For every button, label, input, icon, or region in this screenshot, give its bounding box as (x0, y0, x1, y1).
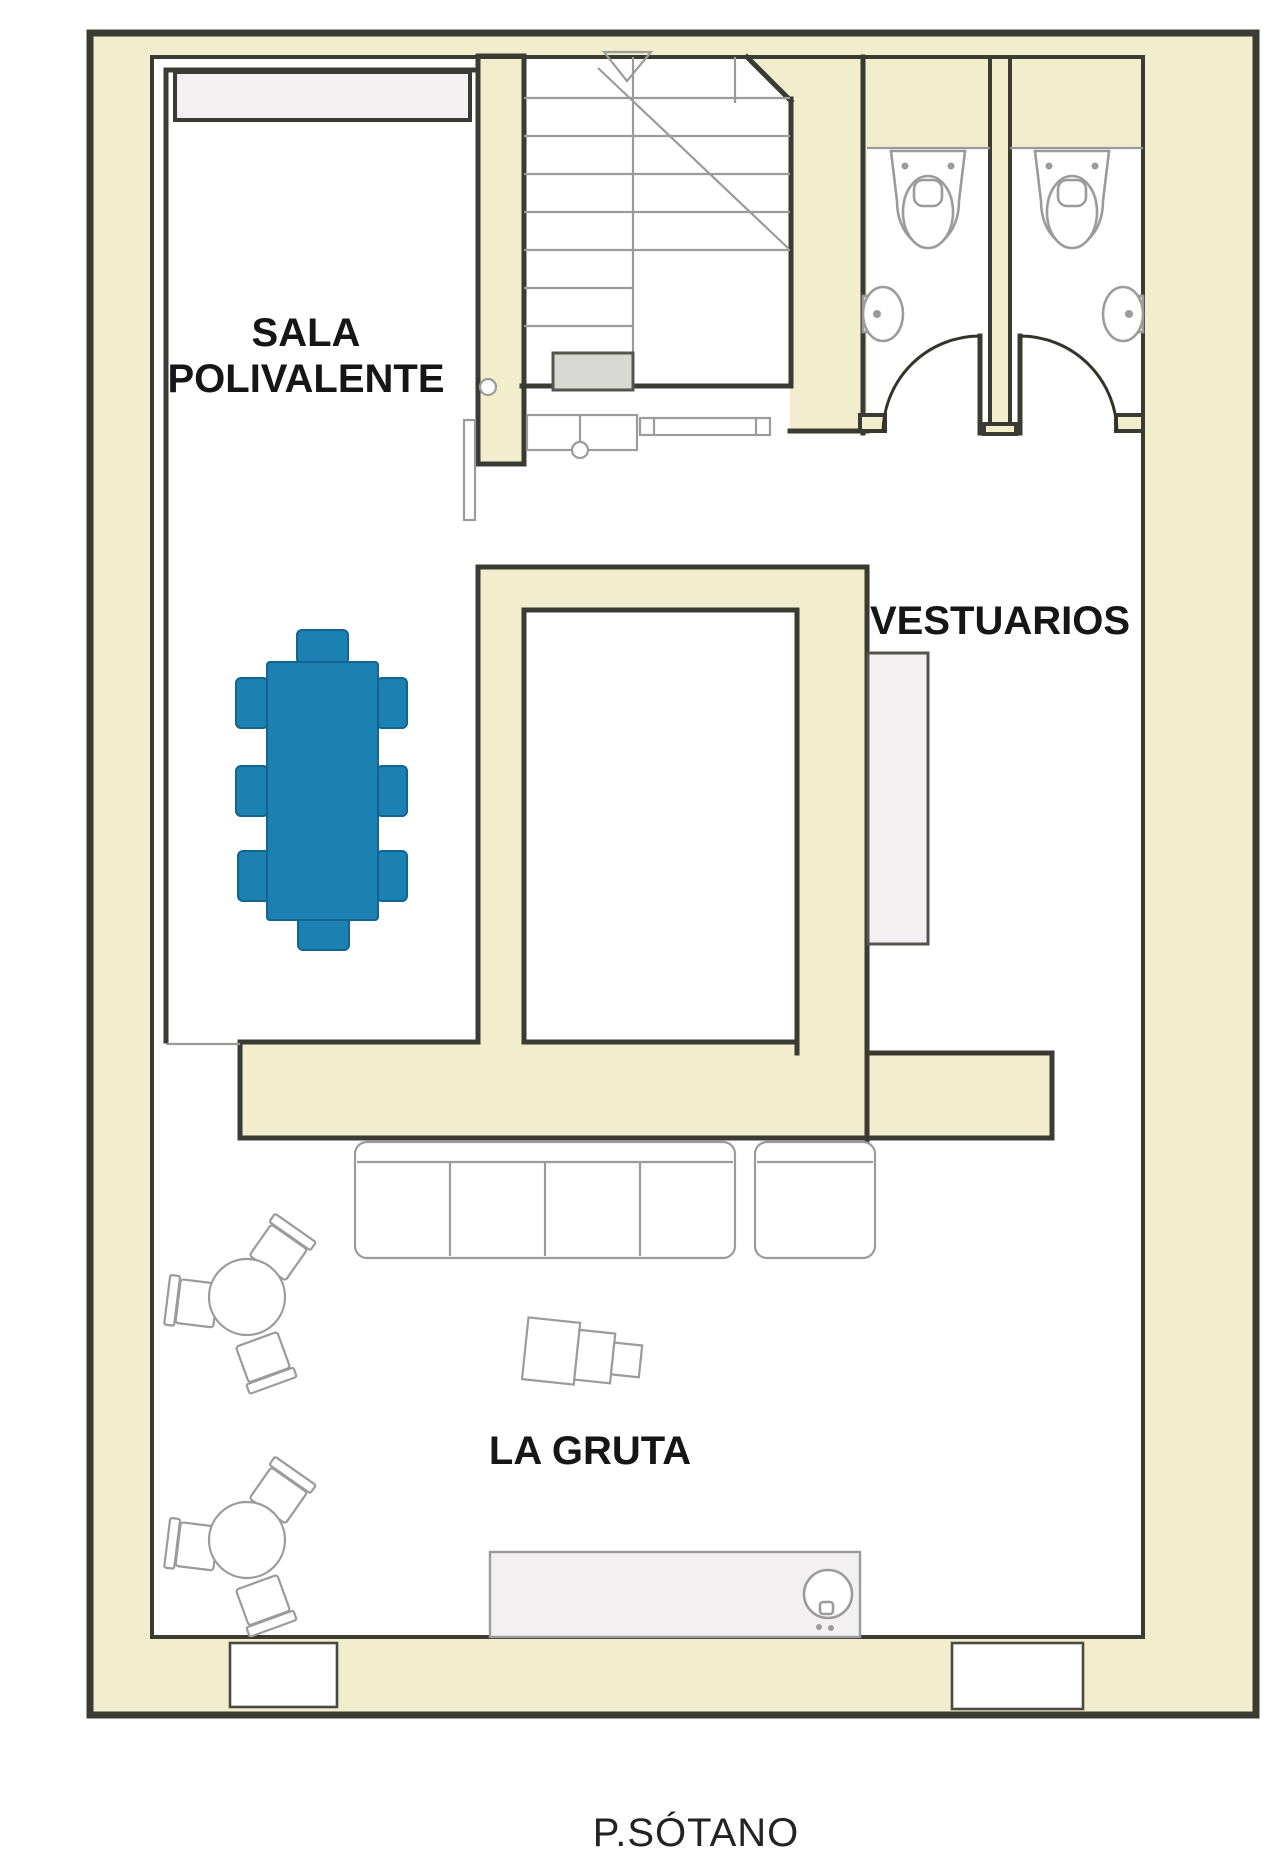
room-label-sala-line1: SALA (252, 311, 361, 355)
right-wall (1143, 33, 1256, 1715)
toilet-icon (1035, 151, 1109, 248)
table-chair-left (236, 766, 268, 816)
toilet-icon (891, 151, 965, 248)
left-wall (90, 33, 152, 1715)
meeting-table-top (267, 662, 378, 920)
round-table-top (209, 1259, 285, 1335)
room-label-sala-line2: POLIVALENTE (167, 357, 444, 401)
stair-enclosure-outline (522, 57, 791, 386)
toilet-right-cistern-strip (1010, 57, 1143, 148)
stair-treads-left (524, 98, 633, 326)
floor-plan-canvas: SALA POLIVALENTE VESTUARIOS LA GRUTA P.S… (0, 0, 1280, 1874)
inner-room-left-wall (478, 567, 524, 1042)
under-stair-rail (640, 418, 770, 435)
stair-toilet-wall-mass (747, 56, 867, 433)
gruta-furniture (164, 1142, 875, 1637)
door-swing-arc-icon (883, 336, 980, 433)
sofa-short (755, 1142, 875, 1258)
table-chair-right (377, 851, 407, 901)
under-stair-knob-icon (572, 442, 588, 458)
toilet-divider-wall (990, 57, 1010, 424)
room-label-vestuarios: VESTUARIOS (870, 599, 1130, 643)
room-label-gruta: LA GRUTA (489, 1429, 691, 1473)
table-chair-head-top (297, 630, 348, 664)
round-table-with-chairs (164, 1214, 316, 1394)
meeting-table-with-chairs (236, 630, 407, 950)
toilet-door-stub-right (1116, 415, 1143, 431)
inner-room-right-wall (797, 567, 867, 1140)
toilet-divider-foot (984, 424, 1016, 434)
armchair-with-side-tables (522, 1317, 644, 1391)
sofa-row (355, 1142, 735, 1258)
floor-plan-drawing: SALA POLIVALENTE VESTUARIOS LA GRUTA P.S… (0, 0, 1280, 1874)
middle-wall-left (240, 1042, 797, 1138)
wardrobe-cabinet (175, 72, 470, 120)
door-swing-arc-icon (1020, 336, 1117, 433)
bottom-wall-opening-right (952, 1643, 1083, 1709)
round-table-with-chairs (164, 1457, 316, 1637)
bar-counter-with-sink (490, 1552, 860, 1637)
table-chair-left (236, 678, 268, 728)
floor-title: P.SÓTANO (593, 1810, 800, 1855)
stair-bottom-step (553, 353, 633, 390)
bench (868, 653, 928, 944)
wall-sink-icon (1103, 287, 1143, 341)
stair-newel-post-icon (480, 379, 496, 395)
sala-furniture (175, 72, 470, 950)
bottom-wall-opening-left (230, 1643, 337, 1707)
table-chair-head-bottom (298, 916, 349, 950)
stair-cut-line (598, 68, 788, 248)
inner-room-inner-outline (524, 610, 797, 1053)
table-chair-left (238, 851, 270, 901)
sala-stair-wall (478, 56, 524, 464)
door-leaf-icon (464, 420, 475, 520)
wall-sink-icon (863, 287, 903, 341)
top-wall (90, 33, 1256, 57)
round-table-top (209, 1502, 285, 1578)
middle-wall-right (867, 1053, 1052, 1138)
table-chair-right (377, 678, 407, 728)
toilet-door-stub-left (860, 415, 885, 431)
toilet-left-cistern-strip (867, 57, 990, 148)
table-chair-right (377, 766, 407, 816)
